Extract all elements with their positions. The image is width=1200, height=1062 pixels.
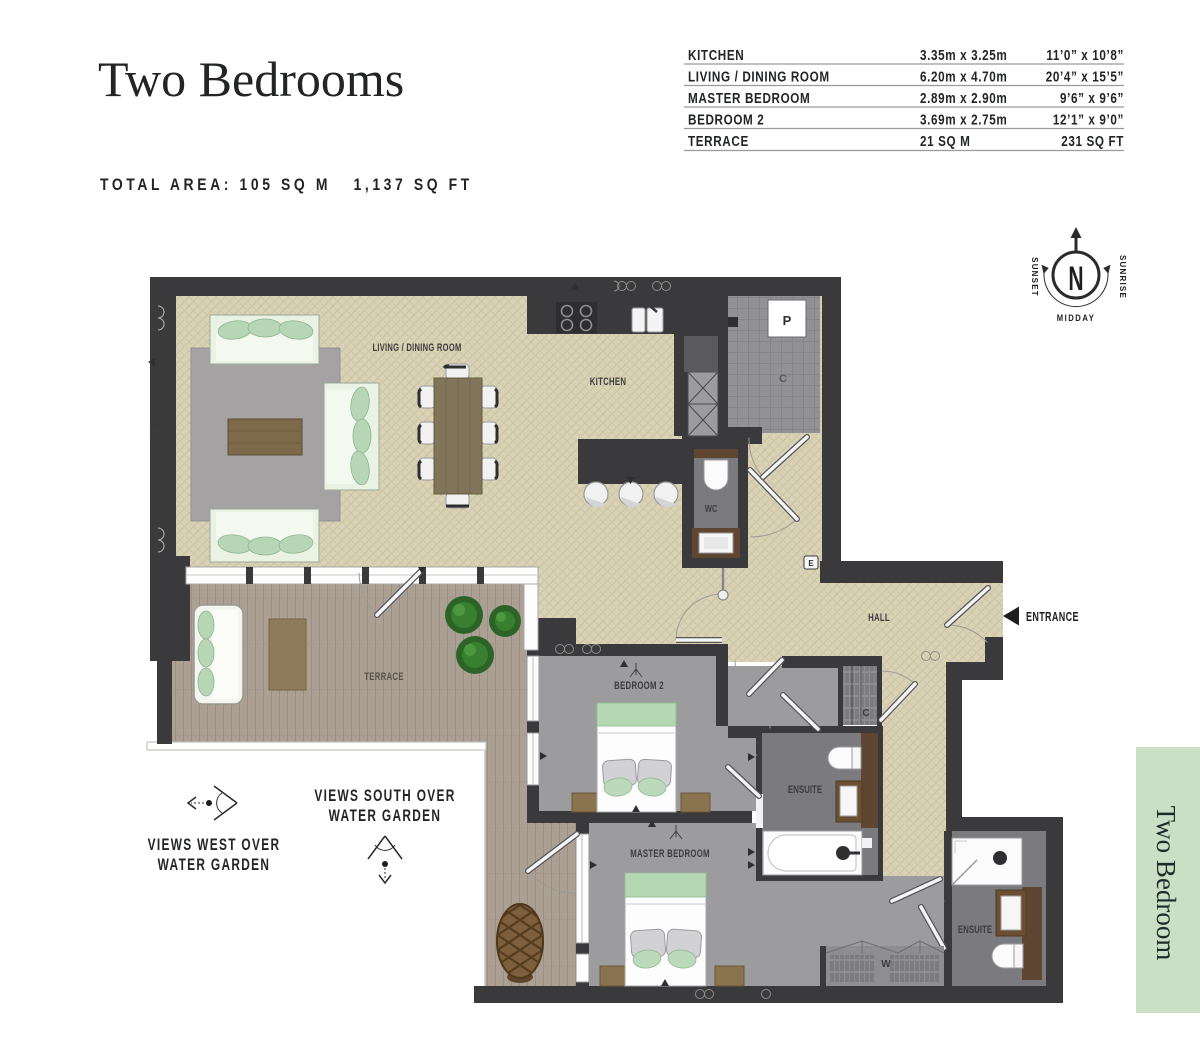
svg-text:Two Bedrooms: Two Bedrooms [98,51,404,107]
svg-text:ENSUITE: ENSUITE [788,784,823,797]
svg-text:SUNSET: SUNSET [1030,257,1039,297]
svg-text:WC: WC [705,503,718,514]
svg-text:TERRACE: TERRACE [688,133,749,150]
svg-text:N: N [1068,259,1083,297]
svg-text:20’4” x 15’5”: 20’4” x 15’5” [1046,68,1124,85]
svg-text:W: W [881,959,891,970]
svg-text:ENSUITE: ENSUITE [958,924,993,937]
svg-text:VIEWS SOUTH OVER: VIEWS SOUTH OVER [314,787,455,805]
svg-text:231 SQ FT: 231 SQ FT [1061,133,1124,150]
svg-text:MASTER BEDROOM: MASTER BEDROOM [630,847,710,860]
svg-text:TERRACE: TERRACE [364,670,404,683]
svg-text:KITCHEN: KITCHEN [590,375,627,388]
svg-text:VIEWS WEST OVER: VIEWS WEST OVER [148,836,281,854]
svg-text:LIVING / DINING ROOM: LIVING / DINING ROOM [688,68,830,85]
svg-text:TOTAL AREA: 105 SQ M 1,137 S: TOTAL AREA: 105 SQ M 1,137 SQ FT [100,176,473,195]
svg-text:6.20m x 4.70m: 6.20m x 4.70m [920,68,1007,85]
svg-text:3.35m x 3.25m: 3.35m x 3.25m [920,47,1007,64]
svg-text:KITCHEN: KITCHEN [688,47,744,64]
svg-text:2.89m x 2.90m: 2.89m x 2.90m [920,90,1007,107]
svg-text:C: C [862,708,869,719]
svg-text:12’1” x 9’0”: 12’1” x 9’0” [1053,111,1124,128]
svg-text:21 SQ M: 21 SQ M [920,133,970,150]
svg-text:ENTRANCE: ENTRANCE [1026,611,1079,625]
svg-text:9’6” x 9’6”: 9’6” x 9’6” [1060,90,1124,107]
svg-text:WATER GARDEN: WATER GARDEN [329,807,442,825]
svg-text:Two Bedroom: Two Bedroom [1151,806,1181,961]
svg-text:C: C [779,373,787,385]
svg-text:SUNRISE: SUNRISE [1118,255,1127,299]
svg-text:BEDROOM 2: BEDROOM 2 [614,679,664,692]
svg-text:WATER GARDEN: WATER GARDEN [158,856,271,874]
svg-text:MIDDAY: MIDDAY [1057,312,1096,323]
svg-text:E: E [808,559,814,568]
svg-text:11’0” x 10’8”: 11’0” x 10’8” [1046,47,1124,64]
svg-text:LIVING / DINING ROOM: LIVING / DINING ROOM [372,342,461,354]
svg-text:P: P [783,313,792,328]
svg-text:3.69m x 2.75m: 3.69m x 2.75m [920,111,1007,128]
svg-text:BEDROOM 2: BEDROOM 2 [688,111,764,128]
svg-text:MASTER BEDROOM: MASTER BEDROOM [688,90,810,107]
svg-text:HALL: HALL [868,611,890,624]
